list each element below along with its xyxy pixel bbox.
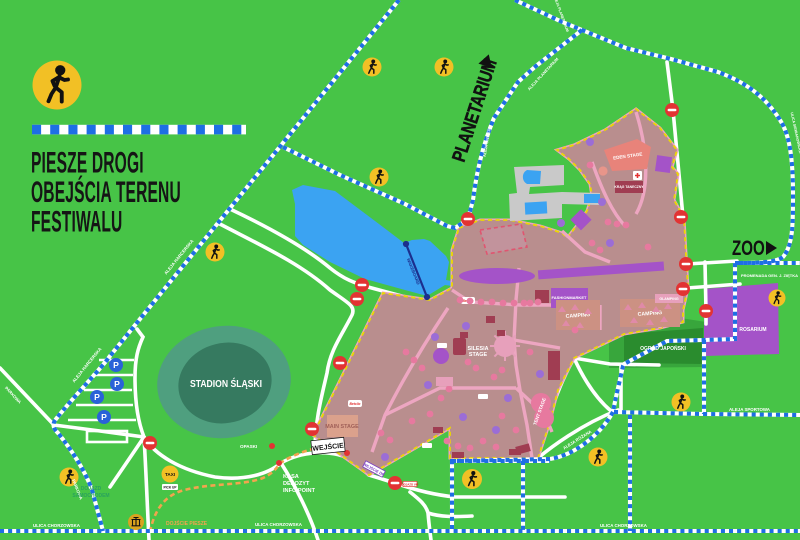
svg-text:STADION ŚLĄSKI: STADION ŚLĄSKI bbox=[190, 377, 262, 390]
svg-text:P: P bbox=[101, 412, 107, 422]
svg-text:OGRÓD JAPOŃSKI: OGRÓD JAPOŃSKI bbox=[640, 344, 686, 352]
svg-text:ZOO: ZOO bbox=[732, 235, 765, 259]
svg-text:PICK UP: PICK UP bbox=[164, 486, 178, 490]
svg-text:DOJAZD: DOJAZD bbox=[81, 486, 102, 492]
svg-text:KRĄG TANECZNY: KRĄG TANECZNY bbox=[614, 185, 644, 189]
svg-text:KASA: KASA bbox=[283, 474, 299, 480]
svg-text:ULICA CHORZOWSKA: ULICA CHORZOWSKA bbox=[600, 523, 648, 528]
svg-text:ALEJA SPORTOWA: ALEJA SPORTOWA bbox=[729, 407, 771, 412]
svg-text:DOJAZD VIP: DOJAZD VIP bbox=[402, 482, 419, 486]
svg-text:Betclic: Betclic bbox=[349, 402, 360, 406]
svg-text:GLAMPING: GLAMPING bbox=[659, 297, 679, 301]
svg-text:SAMOCHODEM: SAMOCHODEM bbox=[72, 493, 109, 499]
svg-text:INFO POINT: INFO POINT bbox=[283, 488, 316, 494]
svg-text:ULICA CHORZOWSKA: ULICA CHORZOWSKA bbox=[33, 523, 81, 528]
svg-text:P: P bbox=[114, 379, 120, 389]
svg-text:FASHIONMARKET: FASHIONMARKET bbox=[552, 295, 587, 300]
svg-text:DEPOZYT: DEPOZYT bbox=[283, 481, 310, 487]
svg-text:ROSARIUM: ROSARIUM bbox=[739, 327, 766, 333]
svg-text:DOJŚCIE PIESZE: DOJŚCIE PIESZE bbox=[166, 520, 208, 527]
svg-text:PROMENADA GEN. J. ZIĘTKA: PROMENADA GEN. J. ZIĘTKA bbox=[741, 273, 798, 278]
svg-text:FESTIWALU: FESTIWALU bbox=[31, 205, 122, 239]
svg-text:TAXI: TAXI bbox=[165, 472, 175, 477]
svg-text:P: P bbox=[113, 360, 119, 370]
svg-text:OPASKI: OPASKI bbox=[240, 444, 257, 449]
svg-text:P: P bbox=[94, 392, 100, 402]
svg-text:STAGE: STAGE bbox=[469, 352, 488, 358]
svg-text:MAIN STAGE: MAIN STAGE bbox=[325, 424, 359, 430]
svg-text:ULICA CHORZOWSKA: ULICA CHORZOWSKA bbox=[255, 522, 303, 527]
